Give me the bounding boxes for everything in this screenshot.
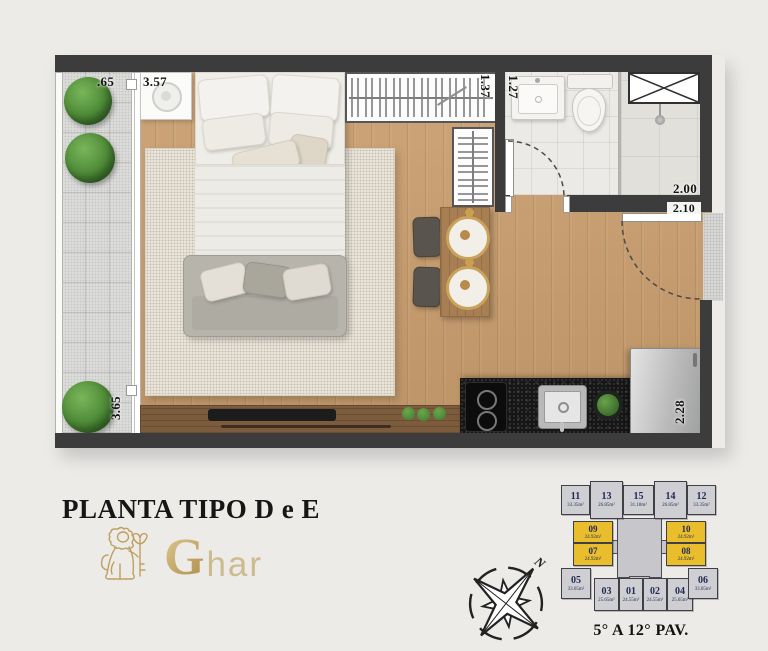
drain-dot <box>535 96 542 103</box>
balcony-floor <box>61 72 131 433</box>
key-plan-unit-12: 1233.35m² <box>687 485 716 515</box>
logo-rest: har <box>206 547 263 582</box>
door-jamb <box>563 196 570 213</box>
counter-plant-icon <box>593 390 623 420</box>
brand-logo: Ghar <box>96 524 263 584</box>
wall-right-upper <box>700 55 712 212</box>
screen: .65 3.57 1.37 1.27 2.00 2.10 2.28 3.65 P… <box>0 0 768 651</box>
closet-rail-side <box>452 127 494 207</box>
x-cross-icon <box>630 74 698 102</box>
decor-plant-icon <box>433 407 446 420</box>
key-plan-unit-02: 0224.55m² <box>643 578 667 611</box>
dim-balcony-width: .65 <box>97 74 114 90</box>
sliding-glass-door <box>131 72 141 435</box>
faucet-icon <box>558 402 569 413</box>
slider-handle-top <box>126 79 137 90</box>
plate-food <box>460 280 470 290</box>
plate-food <box>460 230 470 240</box>
refrigerator <box>630 348 702 435</box>
slider-handle-bottom <box>126 385 137 396</box>
dim-bathroom-length: 2.00 <box>655 181 697 197</box>
key-plan-unit-01: 0124.55m² <box>619 578 643 611</box>
bed <box>195 72 345 260</box>
place-setting <box>446 266 490 310</box>
decor-plant-icon <box>402 407 415 420</box>
key-plan: 1133.35m² 1326.85m² 1531.18m² 1426.85m² … <box>558 478 722 618</box>
gold-cup-icon <box>465 258 474 267</box>
sofa <box>183 255 347 337</box>
key-plan-unit-03: 0325.65m² <box>594 578 619 611</box>
dining-table <box>440 207 490 317</box>
dim-kitchen-wall: 2.28 <box>672 390 688 424</box>
dining-chair <box>412 217 441 258</box>
faucet-icon <box>535 78 540 83</box>
kitchen-sink <box>538 385 587 429</box>
closet-rail-top <box>345 72 497 123</box>
dim-balcony-length: 3.65 <box>108 386 124 420</box>
key-plan-unit-05: 0533.05m² <box>561 568 591 599</box>
key-plan-unit-15: 1531.18m² <box>623 485 654 515</box>
key-plan-unit-14: 1426.85m² <box>654 481 687 519</box>
floor-plan: .65 3.57 1.37 1.27 2.00 2.10 2.28 3.65 <box>55 55 725 448</box>
dining-chair <box>412 267 441 308</box>
place-setting <box>446 216 490 260</box>
cooktop <box>465 382 507 432</box>
key-plan-unit-09-highlighted: 0924.92m² <box>573 521 613 543</box>
closet-rod <box>472 131 474 203</box>
leaves <box>597 394 619 416</box>
faucet-spout <box>560 422 564 432</box>
fridge-handle <box>693 353 697 367</box>
wall-bottom <box>55 433 712 448</box>
entry-door-swing <box>615 213 715 305</box>
logo-initial: G <box>164 532 204 584</box>
dim-bathroom-width: 1.27 <box>505 75 521 105</box>
toilet <box>567 74 611 132</box>
plant-icon <box>65 133 115 183</box>
key-plan-unit-13: 1326.85m² <box>590 481 623 519</box>
key-plan-unit-10-highlighted: 1024.92m² <box>666 521 706 543</box>
plant-icon <box>62 381 114 433</box>
closet-rod <box>349 97 493 99</box>
tv <box>208 409 336 421</box>
toilet-tank <box>567 74 613 89</box>
blanket <box>195 164 345 261</box>
key-plan-unit-07-highlighted: 0724.92m² <box>573 543 613 566</box>
page-title: PLANTA TIPO D e E <box>62 494 320 525</box>
wall-top <box>55 55 712 72</box>
decor-plant-icon <box>417 408 430 421</box>
burner-icon <box>477 390 497 410</box>
key-plan-unit-06: 0633.05m² <box>688 568 718 599</box>
shower-head-icon <box>655 115 665 125</box>
key-plan-unit-11: 1133.35m² <box>561 485 590 515</box>
kitchen-counter <box>460 378 630 433</box>
wall-right-lower <box>700 300 712 448</box>
wall-bathroom-left <box>495 72 505 212</box>
gold-cup-icon <box>465 208 474 217</box>
door-jamb <box>505 196 512 213</box>
shower-box <box>628 72 700 104</box>
dim-closet-depth: 1.37 <box>477 74 493 104</box>
tray-dot <box>161 91 171 101</box>
lion-key-icon <box>96 524 160 584</box>
toilet-seat <box>577 96 601 126</box>
shower-divider <box>618 72 621 195</box>
key-plan-caption: 5° A 12° PAV. <box>556 622 726 640</box>
burner-icon <box>477 411 497 431</box>
compass-rose: N <box>460 550 552 646</box>
dim-entry-opening: 2.10 <box>667 202 701 214</box>
dim-bedroom-width: 3.57 <box>143 74 167 90</box>
key-plan-core <box>617 518 662 578</box>
balcony-railing <box>55 72 63 435</box>
soundbar <box>221 425 391 428</box>
key-plan-unit-08-highlighted: 0824.92m² <box>666 543 706 566</box>
